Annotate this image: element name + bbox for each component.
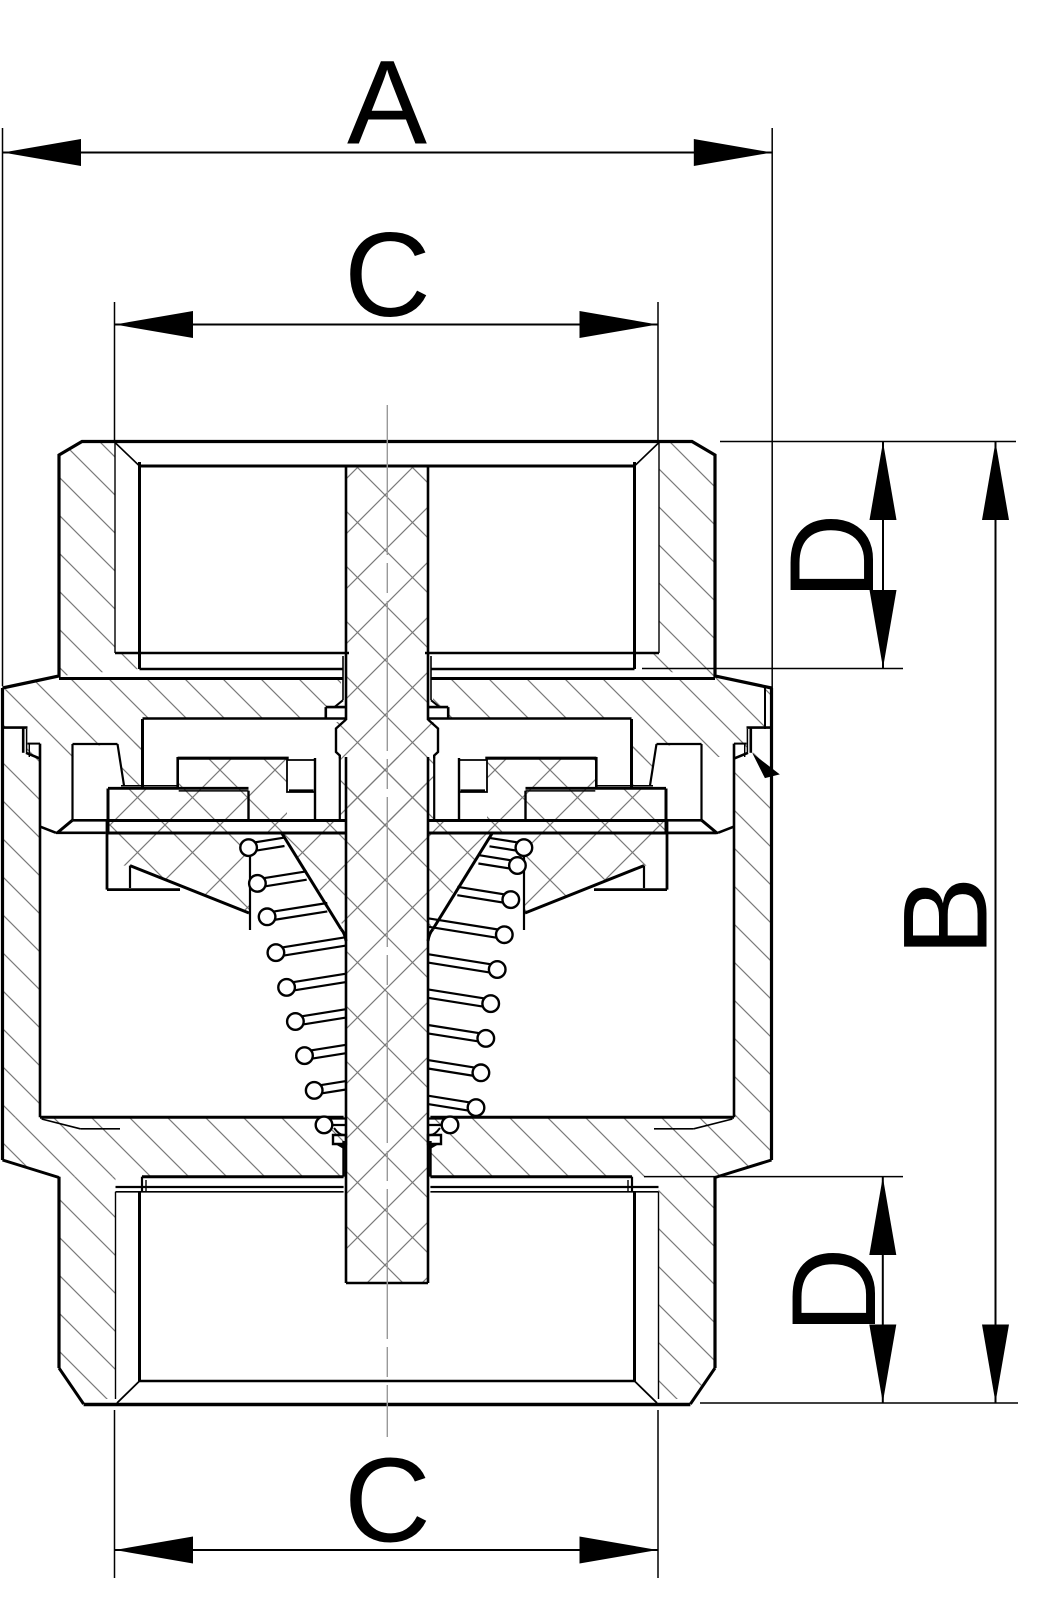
svg-text:C: C xyxy=(344,208,431,342)
svg-text:D: D xyxy=(765,513,899,600)
svg-text:C: C xyxy=(344,1434,431,1568)
svg-text:B: B xyxy=(879,876,1013,956)
svg-text:A: A xyxy=(347,36,427,170)
svg-text:D: D xyxy=(767,1247,901,1334)
